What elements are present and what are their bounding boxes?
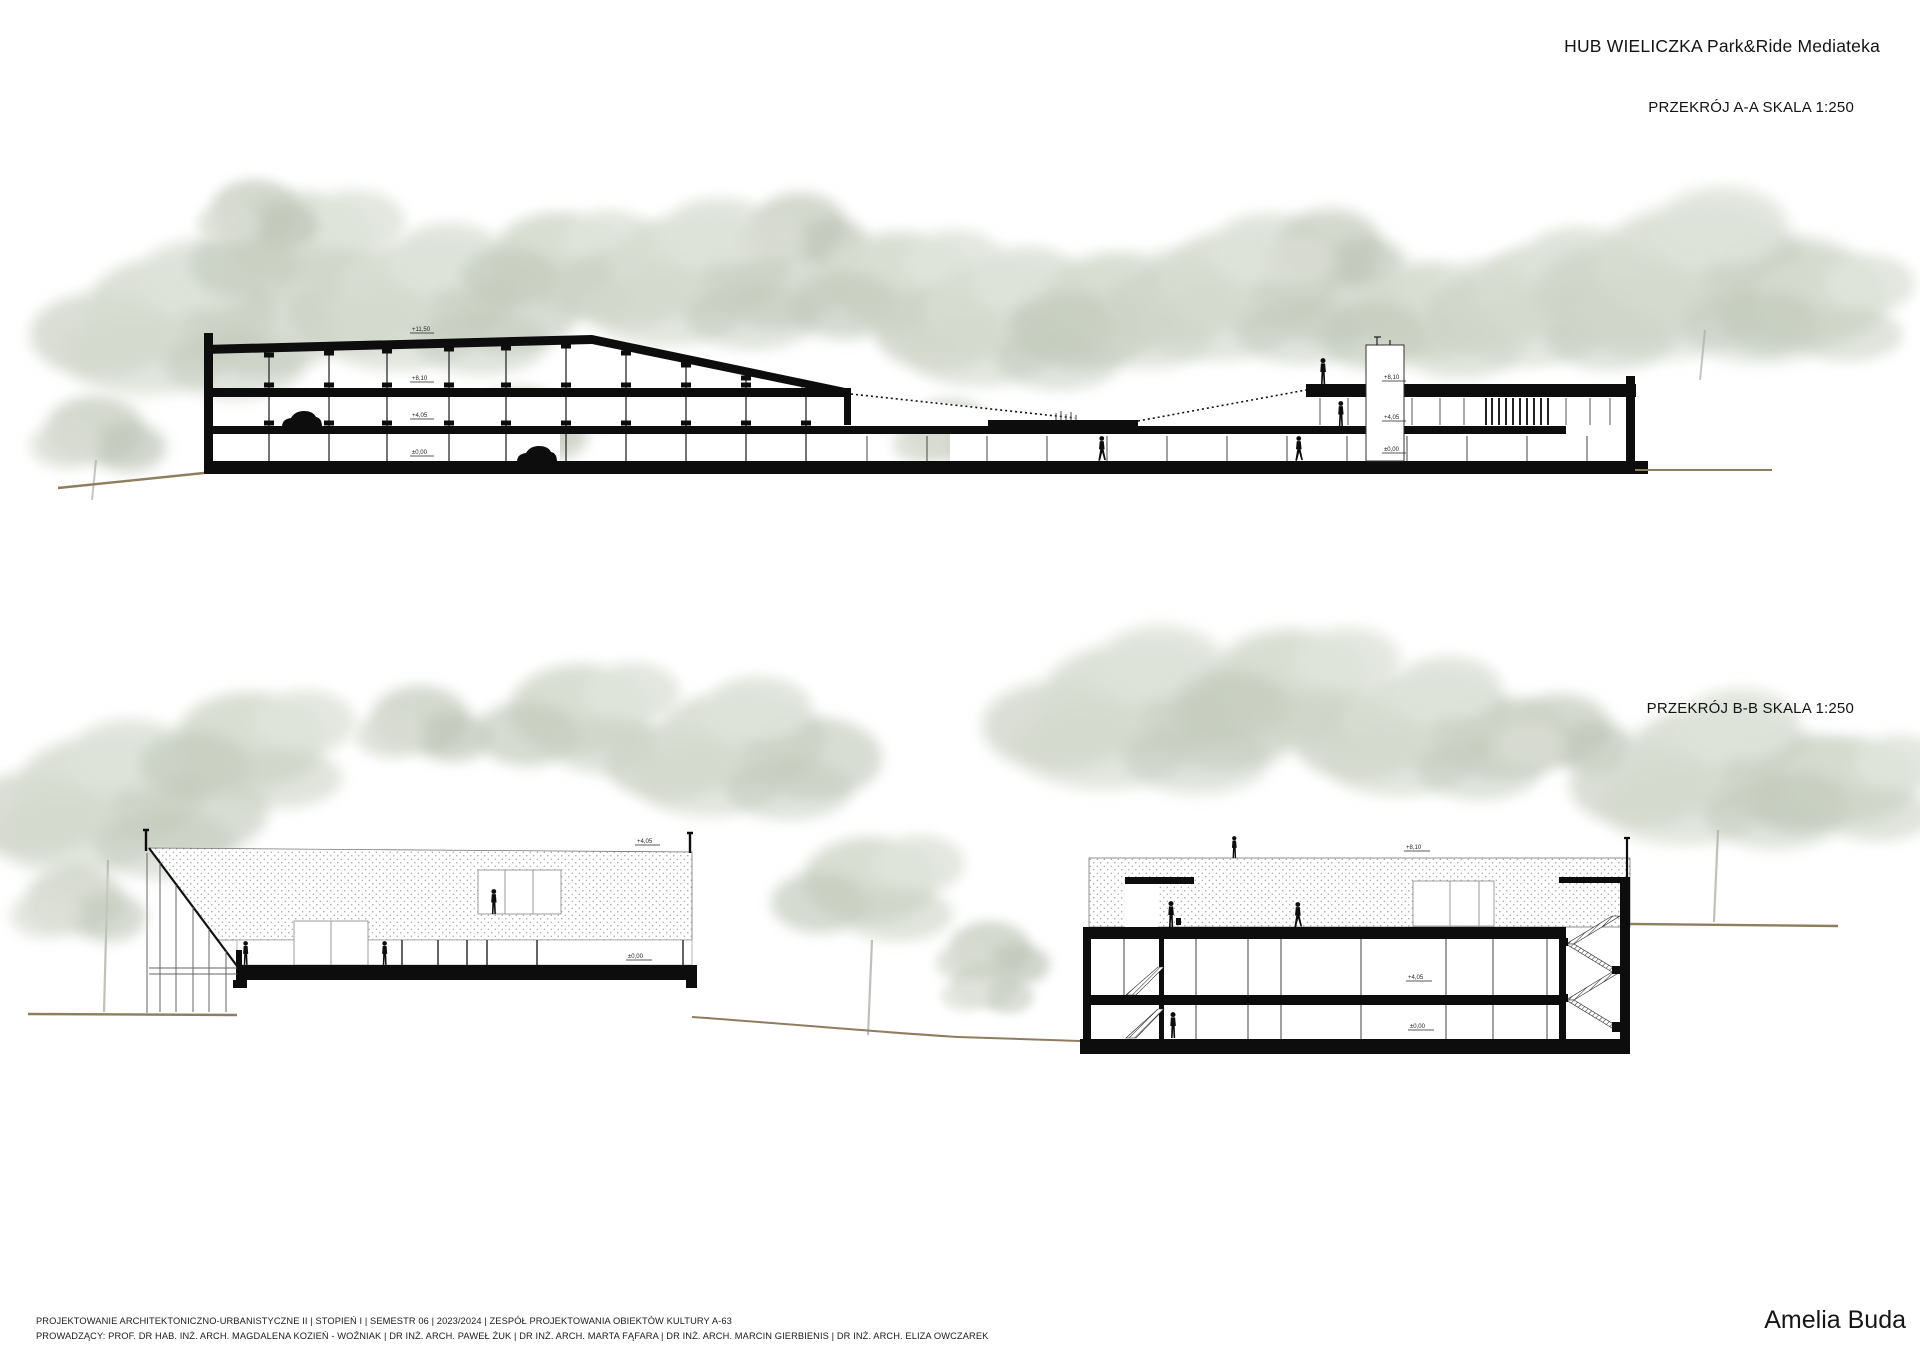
perforated-facade — [149, 848, 692, 940]
b-right-building — [1080, 836, 1631, 1054]
slab-l1 — [206, 426, 1566, 434]
facade-window — [478, 870, 561, 914]
footer-supervisors: PROWADZĄCY: PROF. DR HAB. INŻ. ARCH. MAG… — [36, 1331, 988, 1341]
level-marker: ±0,00 — [1384, 447, 1400, 453]
stair-tower-top — [1559, 877, 1630, 883]
corner-block — [236, 950, 242, 965]
level-marker: +8,10 — [1384, 375, 1400, 381]
garage-left-wall — [204, 333, 213, 474]
slab-l2-endwall — [844, 388, 851, 425]
level-marker: ±0,00 — [628, 954, 644, 960]
level-marker: ±0,00 — [1410, 1024, 1426, 1030]
briefcase — [1176, 918, 1181, 925]
level-marker: +8,10 — [1406, 845, 1422, 851]
stair-tower-right-wall — [1620, 877, 1630, 1054]
section-b-label: PRZEKRÓJ B-B SKALA 1:250 — [1647, 700, 1854, 717]
b-left-below-mask — [237, 980, 693, 1042]
level-marker: ±0,00 — [412, 450, 428, 456]
right-block-parapet-wall — [1626, 376, 1635, 474]
valley-curb — [988, 420, 1138, 427]
presentation-board: +11,50 +8,10 +4,05 ±0,00 +8,10 +4,05 ±0,… — [0, 0, 1920, 1357]
ground-line-a-left — [58, 473, 204, 488]
level-marker: +4,05 — [1408, 975, 1424, 981]
ground-line-b-right — [1630, 924, 1838, 926]
person-on-roof — [1320, 358, 1326, 384]
level-marker: +4,05 — [412, 413, 428, 419]
footer-course-info: PROJEKTOWANIE ARCHITEKTONICZNO-URBANISTY… — [36, 1316, 732, 1326]
author-name: Amelia Buda — [1764, 1306, 1906, 1335]
elevator-core — [1366, 345, 1404, 461]
person-on-roof — [1232, 836, 1237, 858]
level-marker: +4,05 — [1384, 415, 1400, 421]
garage-bay-mask-2 — [268, 434, 560, 461]
band-window — [1413, 881, 1494, 926]
slab-foot — [233, 980, 247, 988]
b-right-mid-slab — [1083, 995, 1566, 1005]
b-right-upper-slab — [1083, 927, 1566, 939]
foreground-tree — [10, 866, 146, 942]
door-opening — [1125, 884, 1158, 927]
level-marker: +11,50 — [412, 327, 431, 333]
base-slab — [204, 461, 1648, 474]
garage-bay-mask-1 — [268, 397, 850, 426]
right-block-roof-slab — [1306, 384, 1636, 397]
b-left-floor-slab — [236, 965, 692, 980]
project-title: HUB WIELICZKA Park&Ride Mediateka — [1564, 36, 1880, 57]
level-marker: +4,05 — [637, 839, 653, 845]
section-a-label: PRZEKRÓJ A-A SKALA 1:250 — [1648, 99, 1854, 116]
sections-drawing: +11,50 +8,10 +4,05 ±0,00 +8,10 +4,05 ±0,… — [0, 0, 1920, 1357]
slab-l2 — [206, 388, 850, 397]
section-b-drawing: +4,05 ±0,00 +8,10 +4,05 ±0,00 — [0, 625, 1920, 1054]
b-right-left-wall — [1083, 927, 1091, 1054]
level-marker: +8,10 — [412, 376, 428, 382]
ground-line-b-mid — [692, 1017, 1080, 1041]
stair-tower-left-wall — [1559, 927, 1566, 1054]
stair-wall — [1159, 927, 1164, 1054]
door-lintel — [1125, 877, 1194, 884]
below-grade-mask-a — [204, 474, 1650, 569]
section-a-drawing: +11,50 +8,10 +4,05 ±0,00 +8,10 +4,05 ±0,… — [30, 179, 1915, 569]
slab-end — [686, 965, 697, 988]
ground-line-b-left — [28, 1014, 237, 1015]
b-left-building — [143, 830, 697, 1042]
